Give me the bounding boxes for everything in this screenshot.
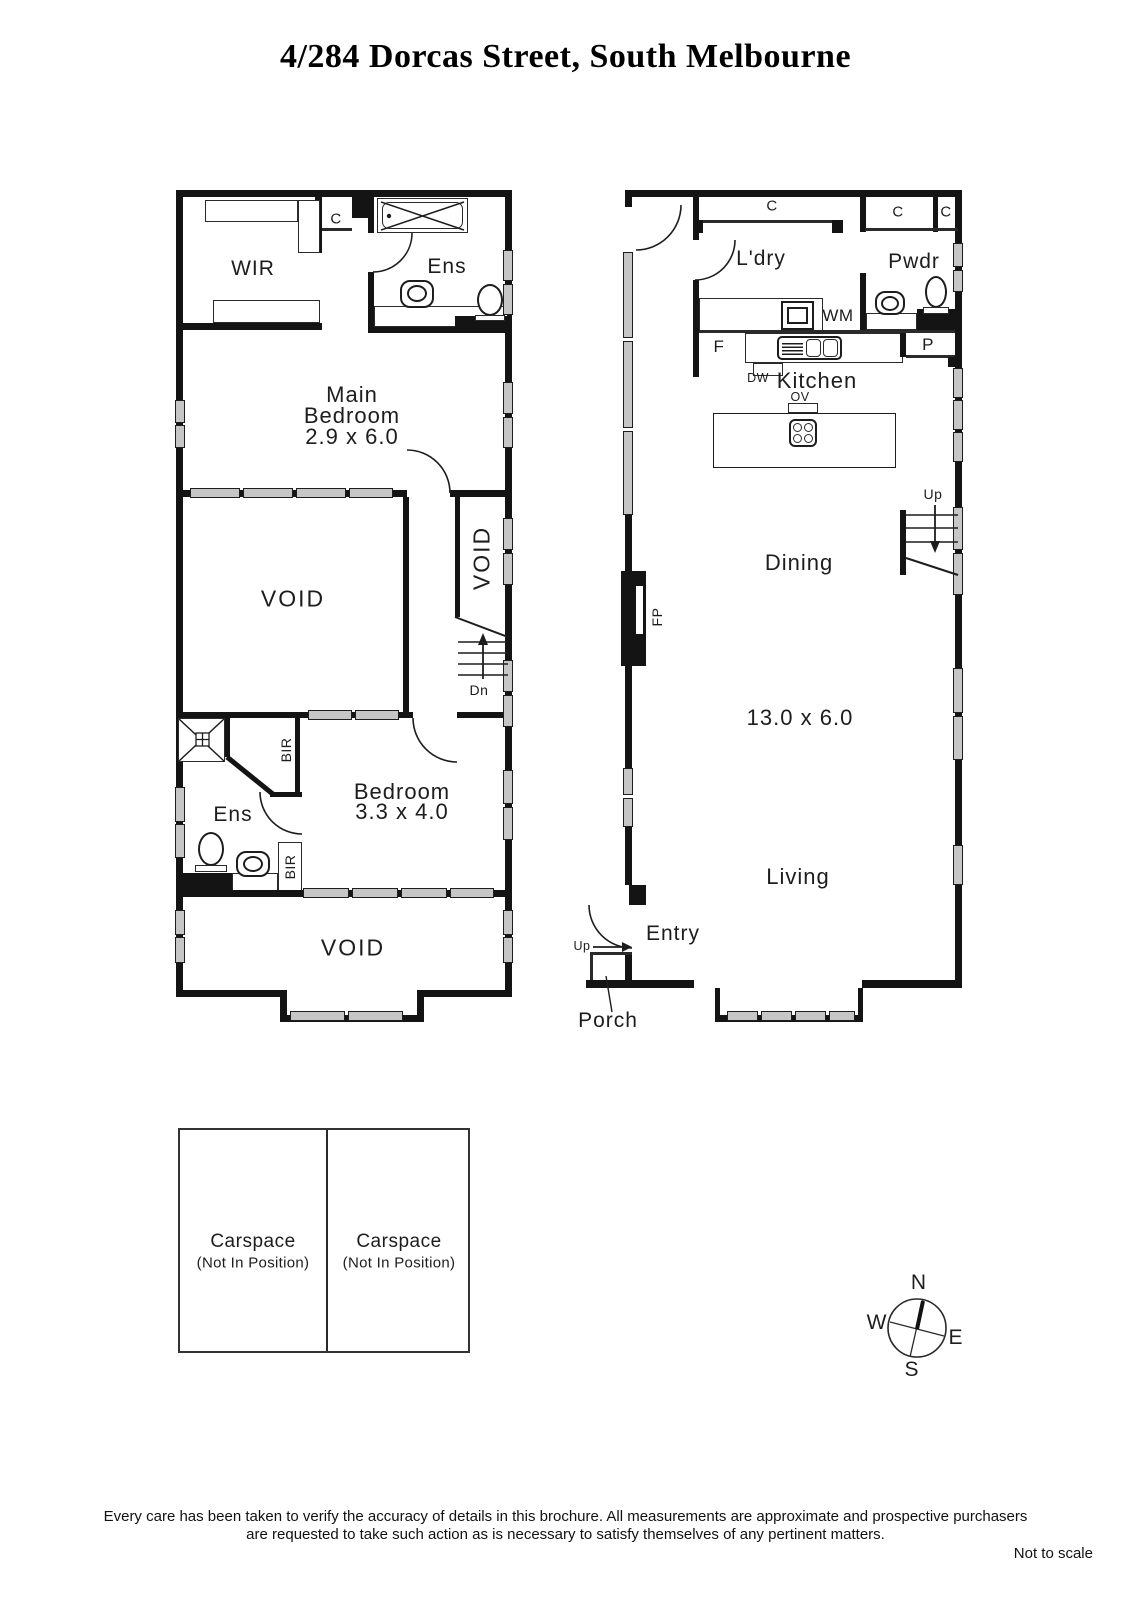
window: [349, 488, 393, 498]
dishwasher-label: DW: [747, 371, 769, 385]
oven-label: OV: [790, 390, 809, 404]
basin-pedestal: [923, 307, 949, 314]
compass-west: W: [867, 1311, 888, 1335]
oven-icon: [788, 403, 818, 413]
cupboard-line: [865, 228, 958, 231]
wall: [455, 497, 460, 617]
window: [175, 937, 185, 963]
window: [175, 425, 185, 448]
window: [175, 400, 185, 423]
cupboard-line: [695, 220, 843, 223]
wall: [860, 197, 866, 232]
room-label-void-lower: VOID: [321, 935, 385, 962]
wall: [625, 952, 632, 983]
wall: [176, 323, 322, 330]
washing-machine-icon: [787, 307, 808, 324]
window: [623, 768, 633, 795]
stairs-down-label: Dn: [470, 682, 489, 698]
vanity-counter: [866, 313, 917, 330]
wall: [862, 980, 962, 988]
cupboard-label: C: [330, 211, 341, 228]
washing-machine-label: WM: [822, 306, 853, 326]
window: [503, 807, 513, 840]
carspace-divider: [326, 1130, 328, 1351]
floorplan-page: { "title": "4/284 Dorcas Street, South M…: [0, 0, 1131, 1600]
window: [953, 716, 963, 760]
ground-level-plan: C C C L'dry Pwdr WM F P DW Kitchen OV FP…: [577, 185, 970, 1045]
basin-icon: [925, 276, 947, 308]
wall: [450, 490, 512, 497]
window: [503, 382, 513, 414]
window: [175, 787, 185, 822]
cupboard-label: C: [766, 198, 777, 215]
porch-wall: [590, 952, 593, 983]
window: [450, 888, 494, 898]
cooktop-burner: [804, 434, 813, 443]
bathtub-inner: [382, 202, 463, 229]
window: [503, 770, 513, 804]
wall: [625, 827, 632, 885]
room-label-void: VOID: [261, 586, 325, 613]
window: [795, 1011, 826, 1021]
wall: [832, 220, 843, 233]
window: [503, 937, 513, 963]
window: [623, 341, 633, 428]
window: [623, 252, 633, 338]
sink-bowl: [806, 339, 821, 357]
wall: [322, 228, 352, 231]
room-dimensions: 3.3 x 4.0: [355, 799, 448, 825]
entry-up-label: Up: [574, 939, 591, 953]
scale-note: Not to scale: [1014, 1545, 1093, 1562]
disclaimer-text: Every care has been taken to verify the …: [0, 1508, 1131, 1525]
wall: [417, 990, 512, 997]
sink-drainer: [782, 341, 803, 355]
basin-icon: [198, 832, 224, 866]
carspace-plan: Carspace (Not In Position) Carspace (Not…: [178, 1128, 470, 1353]
window: [953, 668, 963, 713]
carspace-note: (Not In Position): [197, 1255, 310, 1272]
window: [503, 553, 513, 585]
shower-icon: [178, 718, 225, 762]
wall: [629, 885, 646, 905]
compass-south: S: [904, 1358, 919, 1382]
window: [355, 710, 399, 720]
room-label-void-side: VOID: [469, 526, 496, 590]
compass-north: N: [911, 1271, 927, 1295]
cooktop-burner: [793, 423, 802, 432]
basin-icon: [477, 284, 503, 316]
room-label-living: Living: [766, 864, 829, 890]
window: [953, 553, 963, 595]
wall: [632, 980, 694, 988]
wall: [948, 357, 956, 367]
window: [243, 488, 293, 498]
room-dimensions: 2.9 x 6.0: [305, 424, 398, 450]
fireplace-slot: [636, 586, 643, 634]
window: [953, 243, 963, 267]
window: [503, 417, 513, 448]
wardrobe-shelf: [298, 200, 320, 253]
window: [175, 824, 185, 858]
window: [503, 250, 513, 281]
upper-level-plan: WIR C Ens Main Bedroom 2.9 x 6.0 VOID VO…: [176, 185, 514, 1030]
wardrobe-shelf: [205, 200, 298, 222]
carspace-label: Carspace: [356, 1231, 441, 1253]
window: [953, 368, 963, 398]
window: [303, 888, 349, 898]
window: [308, 710, 352, 720]
wall: [933, 197, 938, 232]
window: [348, 1011, 403, 1021]
window: [503, 910, 513, 935]
robe-label-bir: BIR: [278, 738, 294, 763]
window: [623, 431, 633, 515]
room-label-ens2: Ens: [213, 803, 252, 827]
wall: [900, 510, 906, 575]
window: [401, 888, 447, 898]
carspace-label: Carspace: [210, 1231, 295, 1253]
wall: [625, 190, 632, 207]
window: [953, 400, 963, 430]
room-label-laundry: L'dry: [736, 247, 786, 271]
room-label-ens: Ens: [427, 255, 466, 279]
window: [352, 888, 398, 898]
basin-pedestal: [475, 315, 505, 321]
fridge-label: F: [714, 337, 725, 357]
room-label-entry: Entry: [646, 922, 700, 946]
wardrobe-shelf: [213, 300, 320, 323]
window: [623, 798, 633, 827]
porch-wall: [590, 952, 632, 955]
wall: [368, 197, 374, 233]
window: [761, 1011, 792, 1021]
window: [503, 284, 513, 315]
cooktop-icon: [789, 419, 817, 447]
room-label-wir: WIR: [231, 257, 275, 281]
window: [953, 270, 963, 292]
fireplace-label: FP: [649, 608, 665, 627]
window: [503, 518, 513, 550]
pantry-label: P: [922, 335, 934, 355]
cooktop-burner: [804, 423, 813, 432]
window: [953, 845, 963, 885]
stairs-up-label: Up: [924, 486, 943, 502]
wall: [586, 980, 632, 988]
sink-bowl: [823, 339, 838, 357]
wall: [270, 792, 302, 797]
basin-pedestal: [195, 865, 227, 872]
room-label-dining: Dining: [765, 550, 833, 576]
wall: [625, 515, 632, 571]
robe-label-bir: BIR: [282, 855, 298, 880]
window: [503, 695, 513, 727]
wall: [693, 197, 699, 240]
room-label-porch: Porch: [578, 1009, 638, 1033]
window: [503, 660, 513, 692]
toilet-icon: [243, 856, 263, 872]
compass-east: E: [948, 1326, 963, 1350]
compass-icon: [875, 1290, 960, 1368]
window: [953, 507, 963, 550]
wall: [295, 718, 300, 795]
room-label-kitchen: Kitchen: [777, 368, 857, 394]
carspace-note: (Not In Position): [343, 1255, 456, 1272]
disclaimer-text: are requested to take such action as is …: [0, 1526, 1131, 1543]
toilet-icon: [407, 285, 427, 302]
room-label-powder: Pwdr: [888, 250, 940, 274]
cupboard-label: C: [892, 204, 903, 221]
page-title: 4/284 Dorcas Street, South Melbourne: [0, 38, 1131, 76]
window: [953, 432, 963, 462]
window: [190, 488, 240, 498]
window: [829, 1011, 855, 1021]
wall: [630, 190, 962, 197]
window: [296, 488, 346, 498]
wall: [625, 666, 632, 768]
wall: [225, 718, 230, 757]
window: [290, 1011, 345, 1021]
window: [175, 910, 185, 935]
cooktop-burner: [793, 434, 802, 443]
room-dimensions: 13.0 x 6.0: [747, 705, 854, 731]
wall: [900, 333, 906, 357]
window: [727, 1011, 758, 1021]
toilet-icon: [881, 296, 899, 311]
wall: [176, 990, 285, 997]
cupboard-label: C: [940, 204, 951, 221]
wall: [403, 497, 409, 718]
wall: [176, 190, 512, 197]
